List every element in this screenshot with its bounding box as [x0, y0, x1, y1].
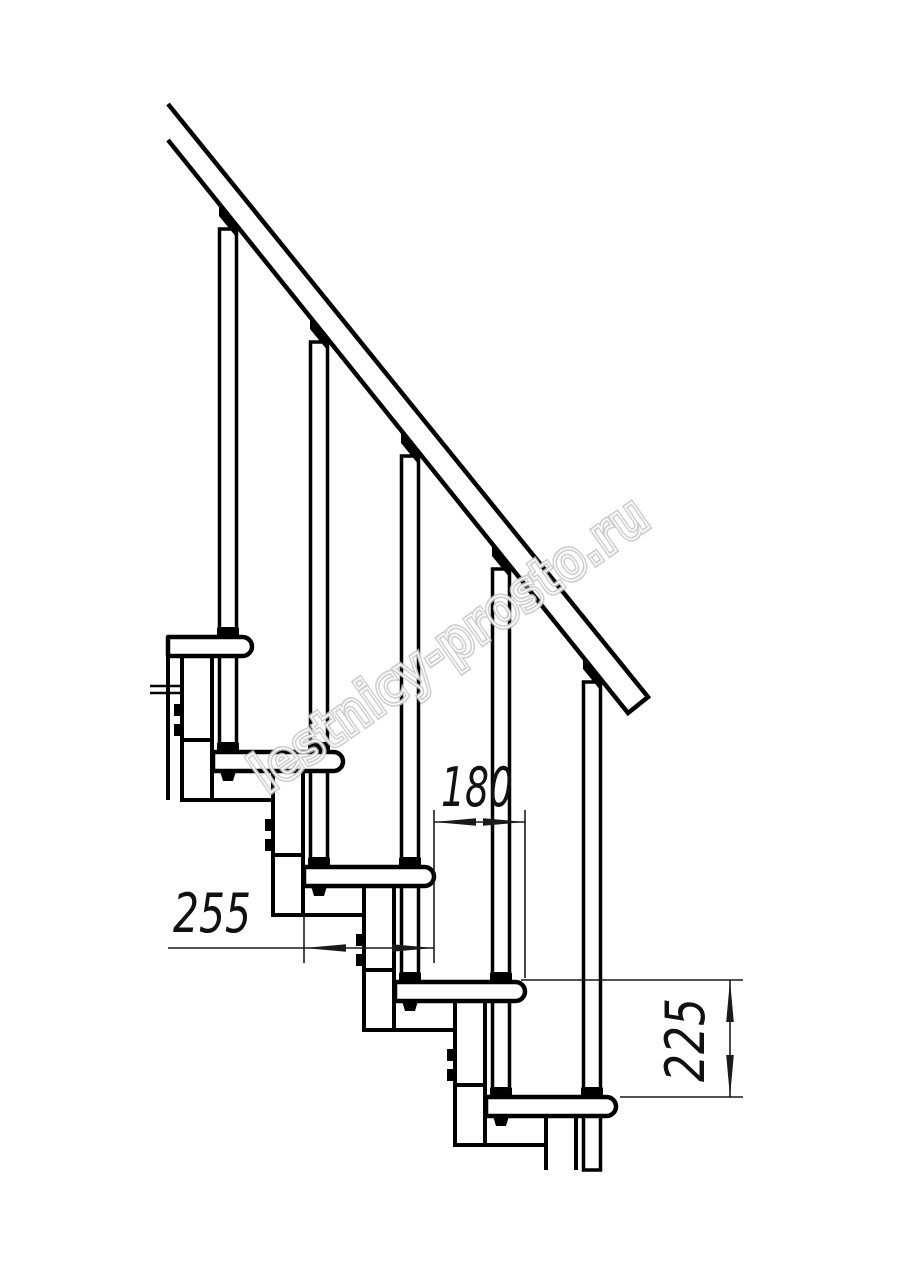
baluster-2 [311, 342, 328, 865]
baluster-foot [308, 857, 330, 868]
dimension-label-180: 180 [441, 756, 513, 819]
baluster-nut [311, 886, 327, 896]
bolt-tab [174, 704, 183, 716]
baluster-clamp [399, 857, 421, 868]
arrow-down [726, 1055, 734, 1097]
bolt-tab [174, 724, 183, 736]
baluster-clamp [581, 1087, 603, 1098]
tread-1 [168, 637, 252, 656]
dimension-180: 180 [434, 756, 525, 978]
drawing-svg: 180 255 225 lestnicy-prosto.ru lestnicy-… [0, 0, 914, 1280]
tread-5 [486, 1097, 616, 1116]
baluster-foot [217, 742, 239, 753]
bolt-tab [265, 819, 274, 831]
arrow-left [304, 944, 346, 952]
bolt-tab [447, 1049, 456, 1061]
staircase-technical-drawing: 180 255 225 lestnicy-prosto.ru lestnicy-… [0, 0, 914, 1280]
cut-edges [150, 637, 182, 800]
baluster-clamp [217, 627, 239, 638]
dimension-label-225: 225 [654, 998, 717, 1082]
baluster-nut [220, 771, 236, 781]
bolt-tab [356, 954, 365, 966]
baluster-clamp [490, 972, 512, 983]
spine-module-5 [546, 1116, 576, 1170]
arrow-up [726, 980, 734, 1022]
baluster-foot [399, 972, 421, 983]
baluster-1 [220, 229, 237, 750]
tread-4 [395, 982, 525, 1001]
baluster-3 [402, 456, 419, 980]
dimension-label-255: 255 [173, 882, 251, 945]
bolt-tab [447, 1069, 456, 1081]
bolt-tab [356, 934, 365, 946]
baluster-nut [402, 1001, 418, 1011]
baluster-foot [490, 1087, 512, 1098]
arrow-left [434, 818, 476, 826]
dimension-225: 225 [521, 980, 743, 1097]
tread-3 [304, 867, 434, 886]
bolt-tab [265, 839, 274, 851]
baluster-nut [493, 1116, 509, 1126]
